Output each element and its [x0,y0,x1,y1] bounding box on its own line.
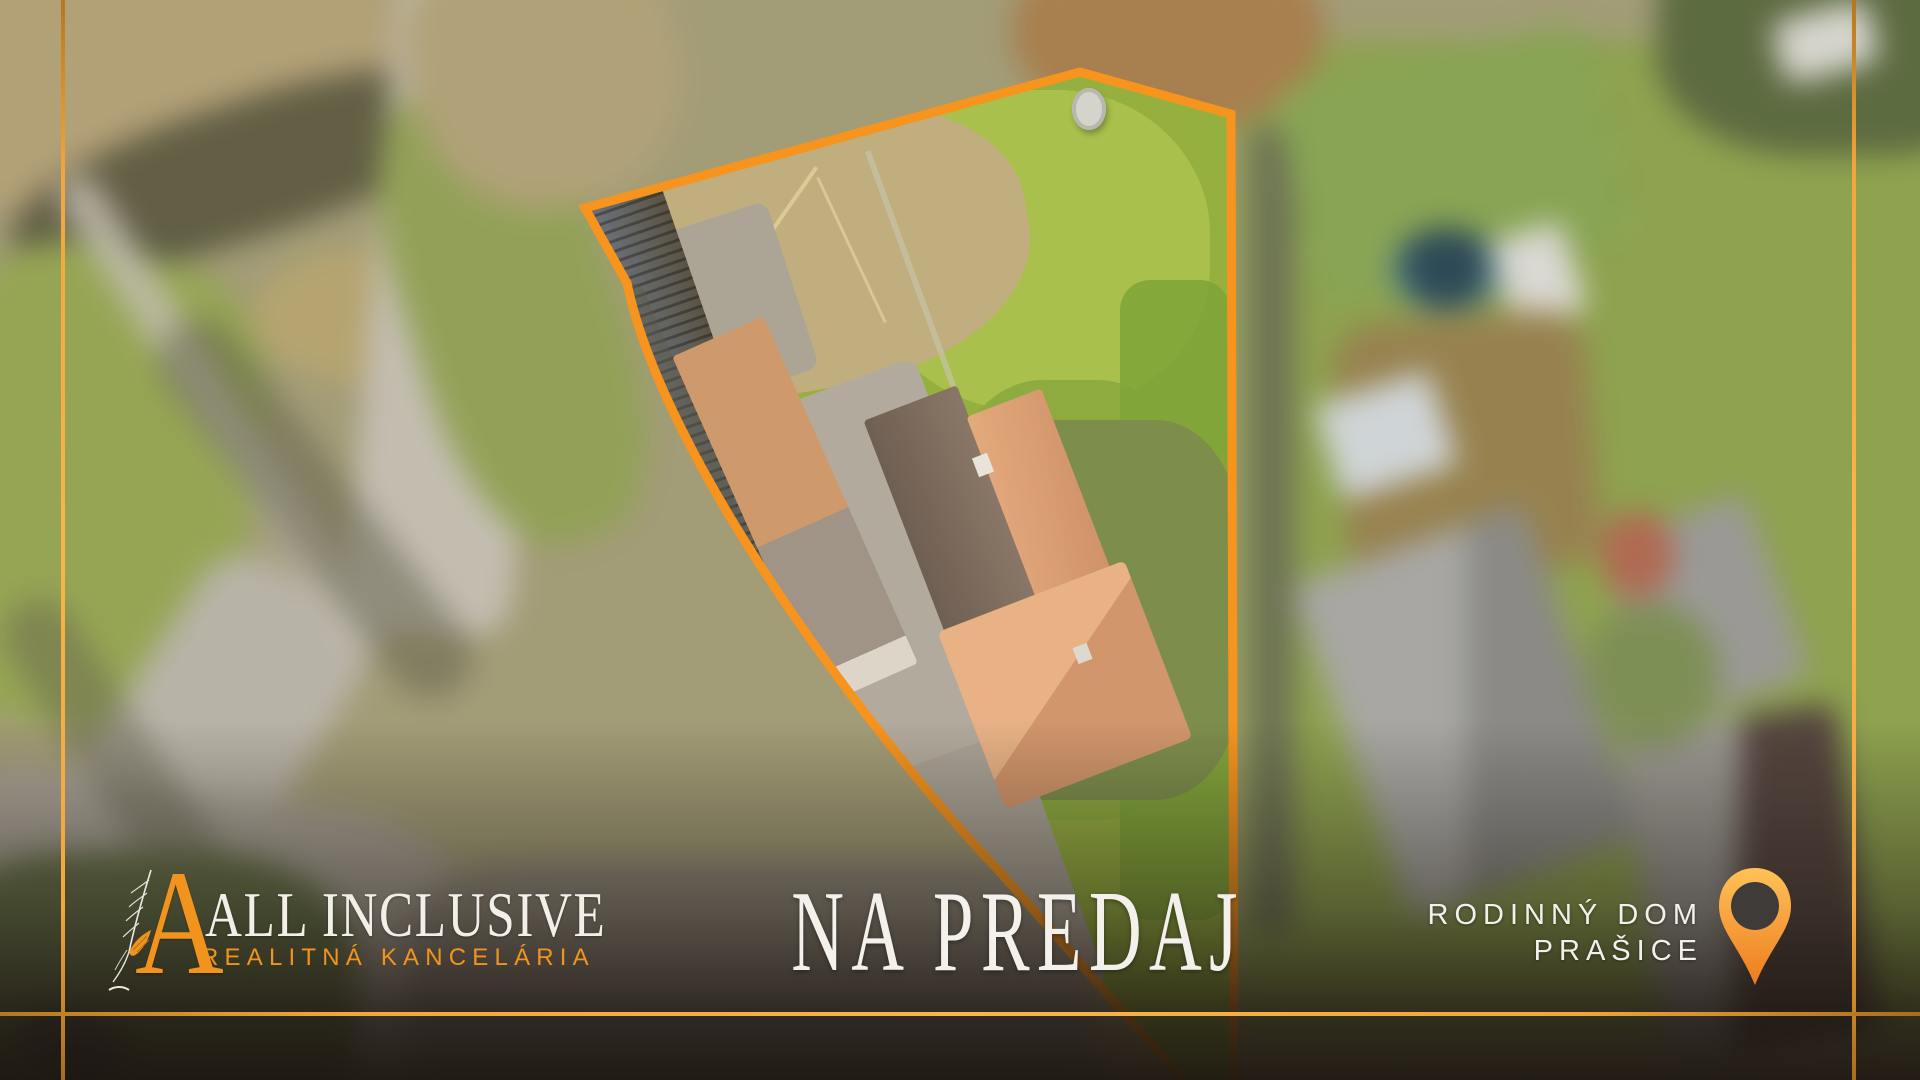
red-bush-right [1600,511,1675,598]
location-line2: PRAŠICE [1428,933,1703,969]
location-label: RODINNÝ DOM PRAŠICE [1428,897,1703,969]
frame-line-left [61,0,65,1080]
frame-line-right [1852,0,1856,1080]
brand-tagline: REALITNÁ KANCELÁRIA [201,944,595,972]
silo [1072,88,1106,130]
pool [1392,228,1501,311]
real-estate-promo-banner: A ALL INCLUSIVE REALITNÁ KANCELÁRIA NA P… [0,0,1920,1080]
sale-headline: NA PREDAJ [791,874,1245,990]
brand-name: ALL INCLUSIVE [205,883,606,947]
frame-line-bottom [0,1012,1920,1016]
location-pin-icon [1716,866,1794,988]
location-line1: RODINNÝ DOM [1428,897,1703,933]
agency-logo: A ALL INCLUSIVE REALITNÁ KANCELÁRIA [105,860,645,1010]
